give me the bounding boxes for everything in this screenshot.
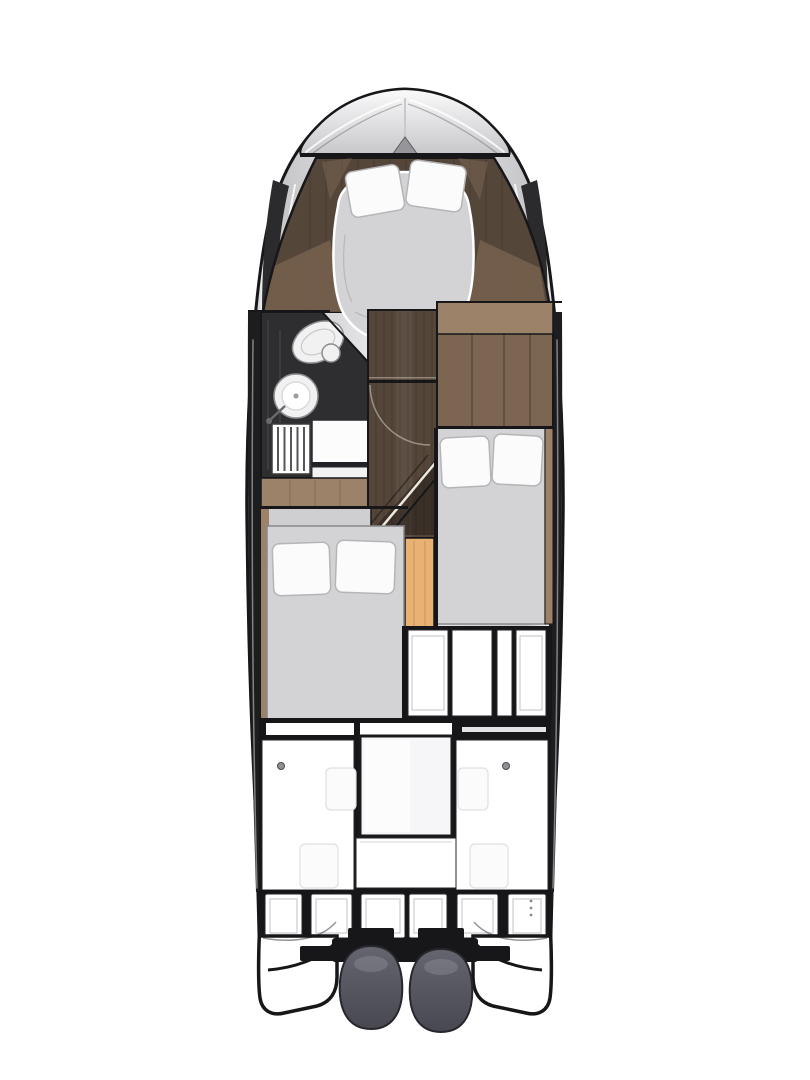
bow-pillow-right <box>405 159 467 212</box>
mount-wing-left <box>300 946 334 961</box>
mid-cabin <box>261 506 408 724</box>
sink-faucet-knob <box>266 418 272 424</box>
transom-panel-2 <box>311 894 352 938</box>
engine-highlight-right <box>424 959 458 975</box>
transom-row <box>259 890 551 940</box>
galley-divider-glint <box>368 377 437 379</box>
cockpit-sill-left <box>266 723 354 735</box>
sink-drain <box>294 394 299 399</box>
cockpit-bench-aft <box>356 838 456 888</box>
outboard-engine-left <box>340 946 403 1029</box>
mount-wing-right <box>476 946 510 961</box>
transom-fitting-dot-1 <box>530 900 533 903</box>
mid-cabin-top-line <box>261 506 408 509</box>
cockpit-sill-center <box>360 723 452 735</box>
guest-pillow-left <box>440 436 492 488</box>
guest-bed-side-trim <box>545 428 553 624</box>
engine-highlight-left <box>354 956 388 972</box>
vanity-front <box>312 467 368 478</box>
cushion-outline-left-upper <box>326 768 356 810</box>
boat-floor-plan <box>0 0 810 1080</box>
cushion-outline-left-lower <box>300 844 338 888</box>
floor-plan-canvas <box>0 0 810 1080</box>
toilet-cistern <box>322 344 340 362</box>
storage-panel-3 <box>497 630 512 716</box>
outboard-engine-right <box>410 949 473 1032</box>
bow-pillow-left <box>344 164 405 219</box>
step-panel-orange <box>405 538 434 630</box>
vanity-counter <box>312 420 368 464</box>
storage-panel-2 <box>452 630 492 716</box>
cockpit <box>259 718 551 894</box>
cockpit-sill-right <box>462 727 546 732</box>
deck-break-line <box>300 153 510 157</box>
cushion-outline-right-upper <box>458 768 488 810</box>
hatch-latch-right <box>503 763 510 770</box>
guest-pillow-right <box>492 434 544 486</box>
transom-fitting-dot-2 <box>530 907 533 910</box>
transom-panel-6 <box>508 894 546 938</box>
mid-pillow-left <box>272 542 331 596</box>
table-sheen <box>364 740 410 832</box>
cabinet-top-band <box>437 302 553 334</box>
transom-fitting-dot-3 <box>530 914 533 917</box>
storage-panel-1 <box>408 630 448 716</box>
vanity-shadow-edge <box>312 462 368 467</box>
corridor <box>364 310 437 548</box>
hatch-latch-left <box>278 763 285 770</box>
storage-row <box>402 626 552 720</box>
cushion-outline-right-lower <box>470 844 508 888</box>
guest-bed-head-line <box>437 426 553 429</box>
galley-divider-line <box>368 380 437 383</box>
mid-pillow-right <box>335 540 396 594</box>
